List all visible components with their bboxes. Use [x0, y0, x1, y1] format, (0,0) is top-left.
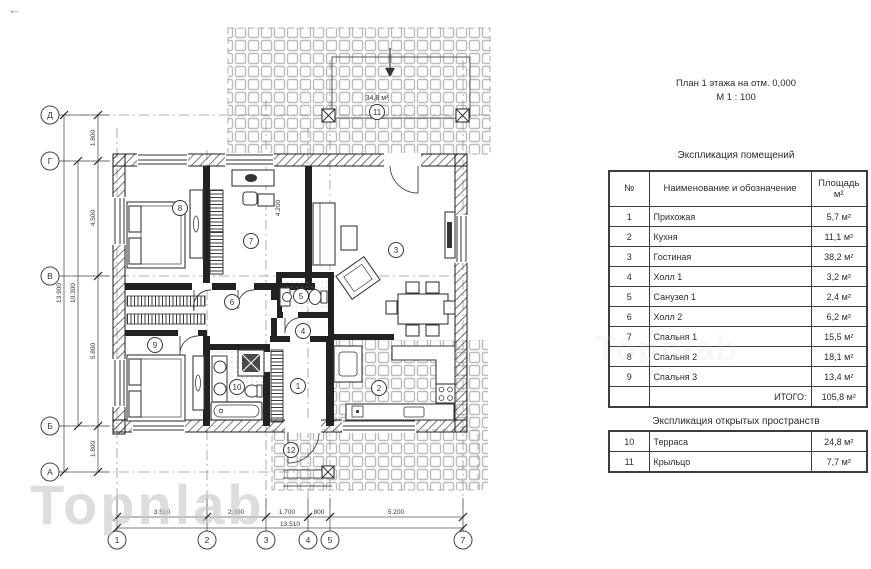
bedroom2-furniture	[127, 190, 203, 268]
svg-text:2.300: 2.300	[228, 509, 245, 516]
bedroom1-furniture	[232, 170, 274, 206]
total-label: ИТОГО:	[649, 387, 811, 408]
svg-text:5.800: 5.800	[90, 342, 97, 359]
room-name: Спальня 2	[649, 347, 811, 367]
svg-text:3: 3	[264, 535, 269, 545]
table-row: 11 Крыльцо 7,7 м²	[609, 452, 867, 473]
room-area: 11,1 м²	[811, 227, 867, 247]
svg-text:13.900: 13.900	[56, 283, 63, 303]
col-axis-bubbles: 1 2 3 4 5 7	[108, 531, 472, 549]
table-row: 6 Холл 2 6,2 м²	[609, 307, 867, 327]
svg-text:11: 11	[373, 108, 382, 117]
room-number: 1	[609, 207, 649, 227]
space-number: 11	[609, 452, 649, 473]
room-number: 2	[609, 227, 649, 247]
porch-post	[322, 466, 334, 478]
room-label-hall2: 6	[225, 295, 240, 310]
room-label-hallway: 1	[291, 379, 306, 394]
room-area: 13,4 м²	[811, 367, 867, 387]
room-label-bedroom2: 8	[173, 201, 188, 216]
room-name: Кухня	[649, 227, 811, 247]
room-area: 18,1 м²	[811, 347, 867, 367]
table-row: 5 Санузел 1 2,4 м²	[609, 287, 867, 307]
room-name: Спальня 1	[649, 327, 811, 347]
room-area: 6,2 м²	[811, 307, 867, 327]
svg-text:2: 2	[205, 535, 210, 545]
table-row: 1 Прихожая 5,7 м²	[609, 207, 867, 227]
room-name: Санузел 1	[649, 287, 811, 307]
svg-text:1.700: 1.700	[279, 509, 296, 516]
room-label-terrace: 11	[370, 105, 385, 120]
space-name: Крыльцо	[649, 452, 811, 473]
bedroom3-furniture	[127, 296, 205, 421]
room-label-bedroom1: 7	[244, 234, 259, 249]
schedule-panel: План 1 этажа на отм. 0,000 М 1 : 100 Экс…	[596, 70, 871, 550]
terrace-area-label: 34,8 м²	[366, 95, 389, 102]
svg-text:Г: Г	[48, 156, 53, 166]
room-name: Гостиная	[649, 247, 811, 267]
rooms-schedule-title: Экспликация помещений	[596, 150, 871, 161]
svg-text:Б: Б	[47, 421, 53, 431]
room-number: 4	[609, 267, 649, 287]
hallway-wardrobe	[271, 350, 283, 422]
svg-text:800: 800	[314, 509, 325, 516]
table-row: 10 Терраса 24,8 м²	[609, 431, 867, 452]
col-header-name: Наименование и обозначение	[649, 171, 811, 207]
open-spaces-table: 10 Терраса 24,8 м² 11 Крыльцо 7,7 м²	[608, 430, 868, 473]
room-name: Прихожая	[649, 207, 811, 227]
table-row: 4 Холл 1 3,2 м²	[609, 267, 867, 287]
svg-text:4: 4	[306, 535, 311, 545]
plan-title: План 1 этажа на отм. 0,000	[596, 78, 871, 89]
room-area: 38,2 м²	[811, 247, 867, 267]
svg-text:13.510: 13.510	[280, 521, 300, 528]
table-total-row: ИТОГО: 105,8 м²	[609, 387, 867, 408]
svg-text:1.800: 1.800	[90, 440, 97, 457]
room-area: 15,5 м²	[811, 327, 867, 347]
room-label-living: 3	[389, 243, 404, 258]
svg-text:В: В	[47, 271, 53, 281]
room-label-kitchen: 2	[372, 381, 387, 396]
svg-text:9: 9	[153, 341, 158, 350]
room-label-bedroom3: 9	[148, 338, 163, 353]
room-number: 7	[609, 327, 649, 347]
room-number: 9	[609, 367, 649, 387]
space-area: 24,8 м²	[811, 431, 867, 452]
svg-text:7: 7	[461, 535, 466, 545]
svg-text:5: 5	[328, 535, 333, 545]
table-row: 2 Кухня 11,1 м²	[609, 227, 867, 247]
room-area: 3,2 м²	[811, 267, 867, 287]
table-row: 8 Спальня 2 18,1 м²	[609, 347, 867, 367]
svg-text:7: 7	[249, 237, 254, 246]
svg-text:8: 8	[178, 204, 183, 213]
space-name: Терраса	[649, 431, 811, 452]
table-row: 7 Спальня 1 15,5 м²	[609, 327, 867, 347]
svg-text:А: А	[47, 467, 53, 477]
room-label-bathroom2: 10	[230, 380, 245, 395]
bedroom1-wardrobe	[210, 190, 223, 274]
room-label-wc1: 5	[294, 289, 309, 304]
svg-text:1: 1	[296, 382, 301, 391]
rooms-schedule-table: № Наименование и обозначение Площадь м² …	[608, 170, 868, 408]
plan-scale: М 1 : 100	[596, 92, 871, 103]
total-value: 105,8 м²	[811, 387, 867, 408]
svg-text:10: 10	[233, 383, 242, 392]
page: { "header": { "back_glyph": "←" }, "wate…	[0, 0, 871, 569]
room-area: 5,7 м²	[811, 207, 867, 227]
table-row: 9 Спальня 3 13,4 м²	[609, 367, 867, 387]
svg-text:3.510: 3.510	[154, 509, 171, 516]
svg-text:4.500: 4.500	[90, 209, 97, 226]
col-header-area: Площадь м²	[811, 171, 867, 207]
table-row: 3 Гостиная 38,2 м²	[609, 247, 867, 267]
space-area: 7,7 м²	[811, 452, 867, 473]
room-name: Холл 1	[649, 267, 811, 287]
table-header-row: № Наименование и обозначение Площадь м²	[609, 171, 867, 207]
room-number: 6	[609, 307, 649, 327]
room-number: 3	[609, 247, 649, 267]
svg-text:6: 6	[230, 298, 235, 307]
living-furniture	[313, 203, 455, 336]
svg-text:2: 2	[377, 384, 382, 393]
space-number: 10	[609, 431, 649, 452]
open-spaces-title: Экспликация открытых пространств	[596, 416, 871, 427]
svg-text:3: 3	[394, 246, 399, 255]
svg-text:4: 4	[301, 327, 306, 336]
col-header-num: №	[609, 171, 649, 207]
room-label-porch: 12	[284, 443, 299, 458]
room-name: Спальня 3	[649, 367, 811, 387]
room-number: 8	[609, 347, 649, 367]
svg-text:1: 1	[115, 535, 120, 545]
svg-text:4.200: 4.200	[275, 199, 282, 216]
bottom-dimensions: 3.510 2.300 1.700 800 5.200 13.510 1 2 3…	[108, 498, 472, 549]
svg-text:Д: Д	[47, 110, 53, 120]
svg-text:5.200: 5.200	[388, 509, 405, 516]
svg-text:10.300: 10.300	[70, 283, 77, 303]
svg-text:12: 12	[287, 446, 296, 455]
room-name: Холл 2	[649, 307, 811, 327]
room-area: 2,4 м²	[811, 287, 867, 307]
room-label-hall1: 4	[296, 324, 311, 339]
svg-text:5: 5	[299, 292, 304, 301]
room-number: 5	[609, 287, 649, 307]
svg-text:1.800: 1.800	[90, 129, 97, 146]
